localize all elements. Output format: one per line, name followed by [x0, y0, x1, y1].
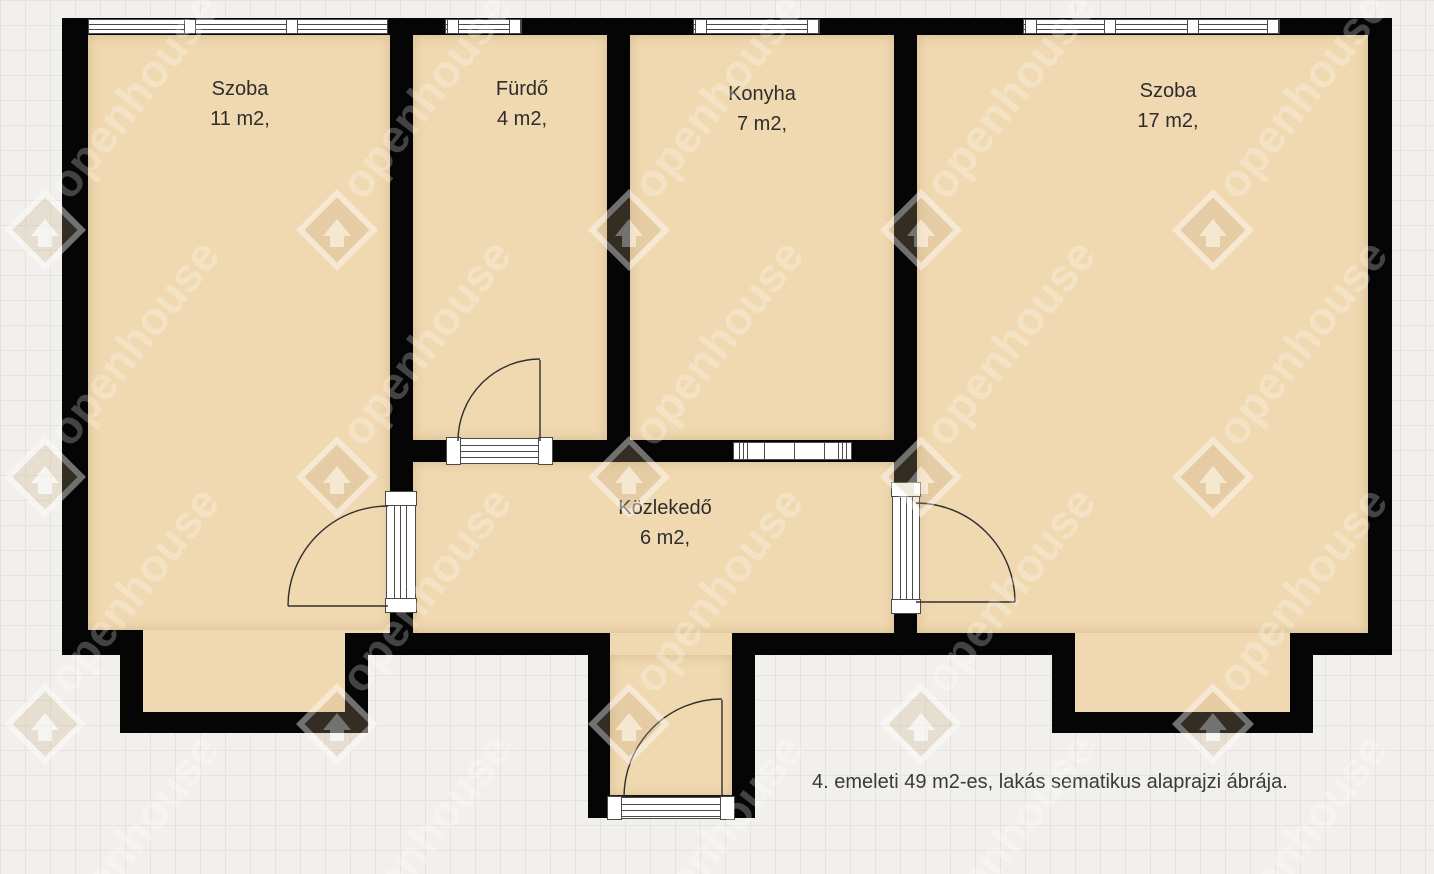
wall-furdo-konyha: [607, 35, 630, 462]
wall-left: [62, 18, 88, 655]
room-area: 4 m2,: [496, 104, 548, 134]
floor-fill-left-notch: [132, 640, 352, 715]
window-mullion: [447, 19, 459, 34]
wall-left-notch-south: [120, 712, 368, 733]
window-mullion: [509, 19, 521, 34]
window-mullion: [1187, 19, 1199, 34]
room-name: Fürdő: [496, 74, 548, 104]
svg-text:openhouse: openhouse: [1206, 724, 1398, 874]
window: [445, 19, 522, 34]
door-threshold-entry: [608, 797, 734, 819]
window-mullion: [1025, 19, 1037, 34]
house-diamond-icon: openhouse: [884, 724, 1105, 874]
window-mullion: [184, 19, 196, 34]
window-mullion: [286, 19, 298, 34]
room-name: Szoba: [210, 74, 270, 104]
room-label-furdo: Fürdő 4 m2,: [496, 74, 548, 134]
window-mullion: [1104, 19, 1116, 34]
svg-text:openhouse: openhouse: [914, 724, 1106, 874]
wall-bottom-right: [1290, 633, 1392, 655]
room-area: 6 m2,: [618, 523, 711, 553]
house-diamond-icon: openhouse: [1176, 724, 1397, 874]
window: [1023, 19, 1280, 34]
plan-caption: 4. emeleti 49 m2-es, lakás sematikus ala…: [812, 771, 1288, 794]
floor-fill-entry: [598, 640, 746, 805]
door-threshold-szoba-left: [386, 492, 416, 612]
door-threshold-furdo: [447, 438, 552, 464]
room-label-szoba-left: Szoba 11 m2,: [210, 74, 270, 134]
room-name: Szoba: [1137, 76, 1198, 106]
room-label-konyha: Konyha 7 m2,: [728, 79, 796, 139]
room-label-szoba-right: Szoba 17 m2,: [1137, 76, 1198, 136]
room-name: Közlekedő: [618, 493, 711, 523]
window-mullion: [695, 19, 707, 34]
window-mullion: [807, 19, 819, 34]
room-area: 7 m2,: [728, 109, 796, 139]
floor-plan-canvas: Szoba 11 m2, Fürdő 4 m2, Konyha 7 m2, Sz…: [0, 0, 1434, 874]
door-threshold-szoba-right: [892, 483, 920, 613]
house-diamond-icon: openhouse: [8, 724, 229, 874]
window: [88, 19, 388, 34]
house-diamond-icon: openhouse: [300, 724, 521, 874]
wall-bottom-mid-left: [345, 633, 610, 655]
wall-entry-east: [732, 633, 755, 818]
hatch-window: [733, 442, 852, 460]
svg-text:openhouse: openhouse: [38, 724, 230, 874]
room-area: 17 m2,: [1137, 106, 1198, 136]
floor-fill-right-notch: [1062, 640, 1302, 715]
wall-right: [1368, 18, 1392, 655]
wall-entry-west: [588, 633, 610, 818]
room-label-kozlekedo: Közlekedő 6 m2,: [618, 493, 711, 553]
window: [693, 19, 820, 34]
svg-text:openhouse: openhouse: [330, 724, 522, 874]
wall-right-notch-south: [1052, 712, 1313, 733]
room-name: Konyha: [728, 79, 796, 109]
room-area: 11 m2,: [210, 104, 270, 134]
window-mullion: [1267, 19, 1279, 34]
